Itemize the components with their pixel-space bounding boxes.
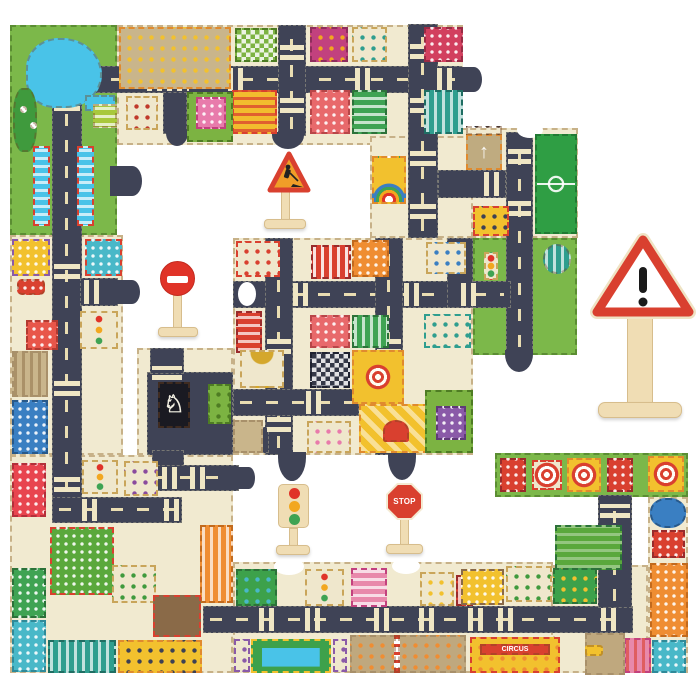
grape-pile (124, 461, 158, 496)
puzzle-knob (388, 452, 416, 480)
parking-lot (233, 420, 263, 453)
orange-tower (650, 563, 688, 637)
crosswalk (468, 608, 486, 631)
bridge (33, 146, 50, 226)
crosswalk (419, 608, 437, 631)
roadworks-sign-base (264, 219, 306, 229)
pink-building (196, 97, 226, 129)
crosswalk (355, 68, 372, 91)
puzzle-knob (110, 166, 142, 196)
no-entry-sign-base (158, 327, 198, 337)
warning-sign-base (598, 402, 682, 418)
puzzle-product-photo: ↑♘CIRCUS STOP (0, 0, 700, 700)
stop-sign-post (400, 518, 409, 546)
road-left (52, 66, 82, 523)
arch-building (652, 640, 686, 673)
puzzle-knob (278, 452, 306, 481)
work-zone (350, 635, 466, 673)
crosswalk (54, 378, 80, 396)
ferris-wheel (567, 458, 601, 492)
crosswalk (259, 608, 277, 631)
roadworks-sign (252, 146, 316, 196)
window-tower (12, 463, 46, 517)
crop-field (93, 104, 117, 128)
puzzle-knob (505, 350, 533, 372)
crosswalk (280, 42, 304, 60)
crosswalk (484, 172, 502, 196)
robot-figure (333, 639, 347, 672)
barrier-line (394, 635, 400, 673)
warning-sign-post (627, 312, 653, 406)
toy-shop (424, 314, 471, 348)
car-park (553, 568, 597, 604)
puzzle-notch (274, 558, 304, 575)
red-cottage (652, 530, 685, 558)
football-field (535, 134, 577, 234)
crosswalk (410, 203, 436, 219)
awning-shop (311, 245, 351, 279)
dirt-lot (153, 595, 201, 637)
teal-house (85, 239, 122, 276)
stop-sign-label: STOP (393, 497, 415, 506)
digger (585, 645, 603, 656)
figure-lot (426, 242, 466, 274)
crosswalk (404, 283, 422, 306)
pea-garden (555, 525, 622, 570)
cart-lot (506, 566, 552, 602)
market-grid (310, 315, 350, 348)
warning-sign (588, 233, 698, 319)
swan (30, 122, 37, 129)
book-shop (424, 27, 463, 62)
road-stub (163, 92, 187, 134)
bakery (352, 240, 389, 277)
road-center-line (518, 139, 521, 347)
crosswalk (508, 149, 531, 164)
circus-banner: CIRCUS (480, 644, 550, 655)
crosswalk (498, 608, 516, 631)
taxi-buildings (50, 527, 114, 595)
banner-building (236, 311, 262, 353)
crosswalk (601, 608, 619, 631)
mosque (240, 350, 284, 388)
crosswalk (164, 499, 182, 521)
race-car-lot (420, 572, 454, 606)
puzzle-notch (578, 497, 596, 523)
puzzle-knob (456, 67, 482, 92)
swan (20, 106, 27, 113)
puzzle-knob (114, 280, 140, 304)
traffic-light-green-lamp (289, 514, 300, 525)
ferris-wheel (648, 456, 684, 492)
crosswalk (508, 201, 531, 216)
balloon (543, 244, 571, 274)
corner-house (436, 406, 466, 440)
crossing-school (310, 352, 350, 388)
tool-shop (352, 27, 387, 62)
crosswalk (267, 416, 291, 432)
road-center-line (240, 401, 352, 404)
no-entry-sign-post (173, 295, 182, 329)
red-bus (17, 279, 45, 295)
stop-sign-face: STOP (388, 485, 421, 518)
puzzle-notch (392, 558, 420, 574)
hospital (310, 90, 350, 134)
tree-corner (208, 384, 231, 424)
puzzle-notch (238, 282, 256, 306)
crosswalk (280, 96, 304, 113)
crow-lot (82, 460, 118, 494)
traffic-light-red-lamp (289, 488, 300, 499)
strongman-booth (607, 458, 633, 492)
hedge (13, 88, 37, 152)
elephant (650, 498, 686, 528)
crosswalk (410, 150, 436, 166)
road-low-h2 (52, 497, 182, 523)
fridge-shop (352, 315, 389, 348)
tree-lot (112, 565, 156, 603)
statue: ♘ (158, 382, 190, 428)
sunburst-tent (532, 460, 562, 490)
stripe-towers (48, 640, 116, 673)
park-traffic-light (484, 252, 498, 280)
blue-building (12, 400, 48, 454)
crosswalk (54, 261, 80, 279)
crosswalk (162, 467, 178, 489)
robot-lot (305, 569, 344, 606)
crosswalk (54, 475, 80, 492)
sunglass-shop (236, 241, 280, 277)
yellow-house (12, 239, 50, 276)
pink-tower (624, 638, 651, 673)
crosswalk (461, 283, 479, 306)
tent-top (383, 420, 409, 442)
red-house (26, 320, 58, 350)
moto-lot (118, 640, 202, 673)
cyan-building (12, 620, 46, 672)
carousel (352, 350, 404, 404)
road-center-line (59, 508, 175, 511)
grocery-shop (235, 28, 277, 62)
traffic-light-base (276, 545, 310, 555)
red-machine (126, 96, 158, 130)
exclamation-icon (639, 267, 647, 293)
pig-shop (351, 568, 387, 607)
road-center-line (65, 73, 68, 516)
construction-lot (119, 27, 231, 89)
road-mid-h (233, 389, 359, 416)
crosswalk (190, 467, 206, 489)
bottle-shop (424, 90, 463, 134)
traffic-light-sign (278, 484, 309, 528)
road-top (52, 66, 462, 93)
pool-piece (251, 639, 331, 673)
fruit-shop (310, 27, 348, 62)
no-entry-bar-icon (167, 276, 188, 283)
no-entry-sign (160, 261, 195, 296)
crosswalk (600, 504, 630, 518)
road-right-vertical (506, 132, 533, 354)
crosswalk (293, 283, 311, 306)
playground (372, 156, 406, 204)
gate-building (12, 351, 48, 397)
crosswalk (82, 499, 100, 521)
crosswalk (306, 391, 324, 414)
light-corner (80, 311, 118, 349)
crosswalk (305, 608, 323, 631)
crosswalk (374, 608, 392, 631)
robot-figure (234, 639, 250, 672)
traffic-light-amber-lamp (289, 501, 300, 512)
crosswalk (84, 280, 100, 304)
veggie-shop (352, 90, 387, 134)
elephant-lot (236, 569, 277, 606)
crosswalk (437, 68, 453, 91)
strongman-booth (500, 458, 526, 492)
curtain-building (200, 525, 233, 603)
flower-stall (307, 421, 351, 453)
dot-row (466, 126, 502, 135)
bridge (77, 146, 94, 226)
stop-sign-base (386, 544, 423, 554)
yellow-building (461, 569, 504, 605)
green-building (12, 568, 46, 618)
striped-shop (232, 90, 277, 134)
stop-sign: STOP (386, 483, 423, 520)
arrow-lot: ↑ (466, 134, 502, 170)
crosswalk (152, 366, 182, 380)
puzzle-knob (235, 467, 255, 489)
bus-stop (473, 206, 509, 236)
circus-facade (470, 637, 560, 673)
